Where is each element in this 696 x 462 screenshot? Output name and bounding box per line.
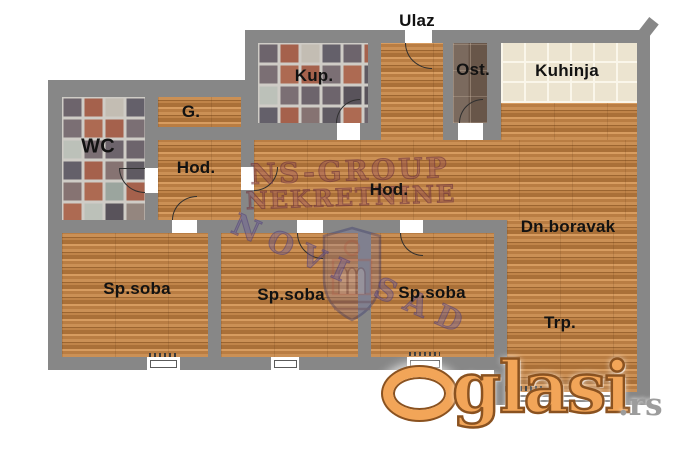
radiator-hatch-soba1 <box>149 353 177 357</box>
wall-below-kupatilo-a <box>245 123 337 140</box>
wall-partition-1 <box>208 233 221 357</box>
wall-below-ostava-b <box>483 123 501 140</box>
wall-right-outer <box>637 30 650 405</box>
room-label-spavaca-soba-1: Sp.soba <box>103 279 171 299</box>
door-opening-soba1 <box>172 220 197 233</box>
radiator-soba1 <box>150 360 177 368</box>
floor-kitchen-lower <box>501 103 637 140</box>
oglasi-logo-text: glasi <box>452 353 629 423</box>
room-label-spavaca-soba-3: Sp.soba <box>398 283 466 303</box>
wall-top-left <box>48 80 258 97</box>
wall-wc-right-a <box>145 97 158 168</box>
oglasi-logo-tld: .rs <box>618 390 663 421</box>
wall-below-ostava-a <box>443 123 458 140</box>
wall-mid-d <box>423 220 507 233</box>
wall-below-kupatilo-b <box>360 123 381 140</box>
door-opening-ostava <box>458 123 483 140</box>
room-label-ostava: Ost. <box>456 60 490 80</box>
wall-wc-right-b <box>145 193 158 220</box>
radiator-soba2 <box>274 360 297 368</box>
wall-leftblock-right-a <box>241 97 254 167</box>
room-label-dnevni-boravak: Dn.boravak <box>521 217 616 237</box>
floor-plan-canvas: Ulaz Kup. Ost. Kuhinja WC G. Hod. Hod. D… <box>0 0 696 462</box>
room-label-trpezarija: Trp. <box>544 313 576 333</box>
wall-mid-a <box>48 220 172 233</box>
room-label-hodnik-levi: Hod. <box>177 158 216 178</box>
room-label-spavaca-soba-2: Sp.soba <box>257 285 325 305</box>
oglasi-logo-o <box>383 367 456 420</box>
room-label-garderoba: G. <box>182 102 200 122</box>
radiator-hatch-soba3 <box>409 352 440 356</box>
wall-below-garderoba <box>158 127 241 140</box>
floor-wc-tiles <box>62 97 145 220</box>
door-opening-soba3 <box>400 220 423 233</box>
room-label-ulaz: Ulaz <box>399 11 435 31</box>
door-opening-wc <box>145 168 158 193</box>
room-label-wc: WC <box>81 136 115 159</box>
room-label-kuhinja: Kuhinja <box>535 61 599 81</box>
door-opening-soba2 <box>297 220 323 233</box>
room-label-hodnik-glavni: Hod. <box>370 180 409 200</box>
door-opening-ulaz <box>405 30 432 43</box>
room-label-kupatilo: Kup. <box>295 66 334 86</box>
door-opening-kupatilo <box>337 123 360 140</box>
